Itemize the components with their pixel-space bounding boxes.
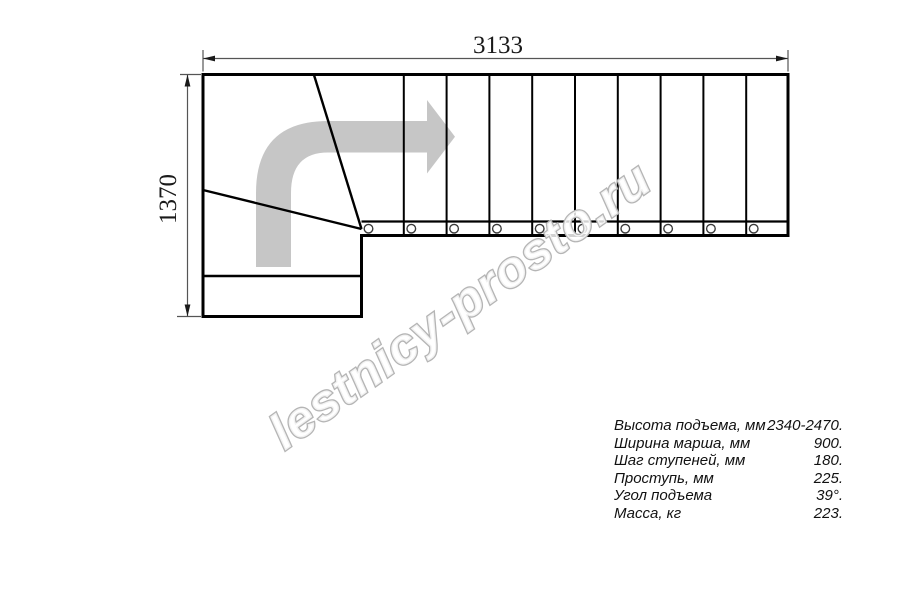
spec-value: 39°. xyxy=(816,487,843,505)
dimension-height: 1370 xyxy=(155,75,201,317)
spec-label: Угол подъема xyxy=(614,487,712,505)
spec-value: 180. xyxy=(814,452,843,470)
dimension-arrowhead xyxy=(185,305,191,317)
fastener-circle xyxy=(364,224,373,233)
fastener-circle xyxy=(707,224,716,233)
spec-row: Шаг ступеней, мм 180. xyxy=(614,452,843,470)
spec-row: Высота подъема, мм 2340-2470. xyxy=(614,417,843,435)
fastener-circle xyxy=(749,224,758,233)
spec-label: Высота подъема, мм xyxy=(614,417,766,435)
spec-row: Проступь, мм 225. xyxy=(614,470,843,488)
width-dimension-label: 3133 xyxy=(473,32,523,59)
dimension-arrowhead xyxy=(203,56,215,62)
spec-value: 223. xyxy=(814,505,843,523)
fastener-circle xyxy=(450,224,459,233)
dimension-width: 3133 xyxy=(203,32,788,72)
spec-value: 900. xyxy=(814,435,843,453)
dimension-arrowhead xyxy=(776,56,788,62)
fastener-circle xyxy=(493,224,502,233)
dimension-arrowhead xyxy=(185,75,191,87)
spec-row: Угол подъема 39°. xyxy=(614,487,843,505)
staircase-plan-page: 3133 1370 lestnicy-prosto.ru Высота подъ… xyxy=(0,0,900,600)
fastener-circle xyxy=(621,224,630,233)
spec-label: Шаг ступеней, мм xyxy=(614,452,745,470)
spec-label: Масса, кг xyxy=(614,505,681,523)
spec-label: Проступь, мм xyxy=(614,470,714,488)
spec-row: Масса, кг 223. xyxy=(614,505,843,523)
spec-label: Ширина марша, мм xyxy=(614,435,750,453)
fastener-circle xyxy=(407,224,416,233)
spec-table: Высота подъема, мм 2340-2470. Ширина мар… xyxy=(614,417,843,523)
height-dimension-label: 1370 xyxy=(155,174,182,224)
spec-row: Ширина марша, мм 900. xyxy=(614,435,843,453)
spec-value: 225. xyxy=(814,470,843,488)
watermark-text: lestnicy-prosto.ru xyxy=(259,150,662,460)
spec-value: 2340-2470. xyxy=(767,417,843,435)
direction-arrow-icon xyxy=(256,100,455,267)
fastener-circle xyxy=(664,224,673,233)
